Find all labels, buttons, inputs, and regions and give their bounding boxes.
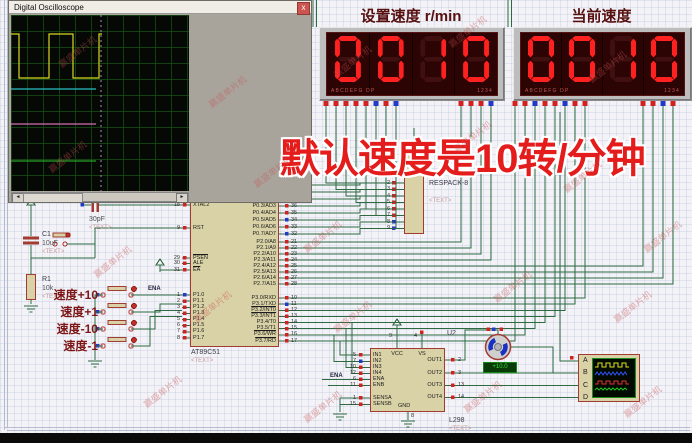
pin-indicator [459, 101, 464, 106]
segment-g [613, 57, 633, 62]
pin-indicator [285, 276, 289, 280]
segment-b [631, 39, 636, 58]
oscilloscope-traces [11, 15, 189, 191]
oscilloscope-plot-area [11, 15, 189, 191]
c1-value-label: 10uF [42, 240, 58, 247]
speed-push-button[interactable] [100, 319, 138, 333]
pin-indicator [285, 258, 289, 262]
pin-indicator [543, 101, 548, 106]
c1-text-placeholder: <TEXT> [42, 249, 64, 255]
pin-indicator [285, 232, 289, 236]
mcu-pin-number: 17 [291, 338, 297, 345]
pin-indicator [661, 101, 666, 106]
segment-legend: ABCDEFG DP [331, 88, 376, 94]
pin-indicator [285, 296, 289, 300]
driver-pin-number: 13 [458, 382, 464, 389]
display-inner: ABCDEFG DP1234 [326, 32, 498, 96]
respack-pin-number: 9 [378, 225, 390, 232]
segment-f [651, 39, 656, 58]
segment-g [572, 57, 592, 62]
segment-b [549, 39, 554, 58]
segment-e [610, 61, 615, 80]
pin-indicator [334, 101, 339, 106]
driver-pin-number: 4 [414, 333, 417, 340]
pin-indicator [513, 101, 518, 106]
driver-pin-label: GND [398, 403, 410, 410]
seven-seg-digit [528, 36, 554, 82]
pin-indicator [384, 101, 389, 106]
mcu-pin-label: P3.7/RD [226, 338, 276, 345]
driver-pin-number: 9 [389, 333, 392, 340]
segment-c [356, 61, 361, 80]
ena-net-label-buttons: ENA [148, 286, 161, 292]
seven-seg-digit [378, 36, 404, 82]
motor-rpm-readout: +10.0 [483, 362, 517, 373]
driver-pin-number: 15 [344, 401, 356, 408]
pin-indicator [359, 372, 363, 376]
pin-indicator [285, 321, 289, 325]
close-icon[interactable]: x [297, 2, 310, 15]
pin-indicator [285, 204, 289, 208]
seven-seg-digit [463, 36, 489, 82]
segment-f [335, 39, 340, 58]
pin-indicator [489, 101, 494, 106]
segment-b [399, 39, 404, 58]
pin-indicator [563, 101, 568, 106]
digit-cell [643, 33, 684, 95]
pin-indicator [573, 101, 578, 106]
pin-indicator [359, 378, 363, 382]
segment-a [613, 36, 633, 41]
segment-a [531, 36, 551, 41]
ena-net-label-driver: ENA [330, 373, 343, 379]
display-title-current-speed: 当前速度 [513, 5, 690, 26]
digit-cell [602, 33, 643, 95]
respack-text-placeholder: <TEXT> [429, 198, 451, 204]
pin-indicator [324, 101, 329, 106]
pin-indicator [285, 339, 289, 343]
motor-ref-label: U2 [447, 330, 456, 337]
segment-c [631, 61, 636, 80]
segment-f [569, 39, 574, 58]
pin-indicator [533, 101, 538, 106]
segment-c [441, 61, 446, 80]
mcu-pin-number: 8 [163, 335, 180, 342]
segment-f [528, 39, 533, 58]
speed-button-label: 速度+1 [14, 303, 98, 320]
wire [401, 421, 415, 427]
segment-a [466, 36, 486, 41]
motor-driver-ref-label: L298 [449, 417, 465, 424]
dc-motor-symbol [483, 332, 513, 362]
seven-seg-digit [610, 36, 636, 82]
segment-legend: ABCDEFG DP [525, 88, 570, 94]
segment-a [338, 36, 358, 41]
mcu-pin-label: RST [193, 225, 204, 232]
segment-d [613, 77, 633, 82]
segment-c [484, 61, 489, 80]
driver-pin-number: 2 [458, 357, 461, 364]
segment-e [378, 61, 383, 80]
segment-d [338, 77, 358, 82]
segment-c [399, 61, 404, 80]
segment-b [672, 39, 677, 58]
mcu-pin-label: EA [193, 267, 200, 274]
pin-indicator [183, 324, 187, 328]
pin-indicator [183, 312, 187, 316]
pin-indicator [285, 225, 289, 229]
component-shape [23, 237, 39, 240]
wire [333, 414, 347, 420]
speed-button-label: 速度-10 [14, 320, 98, 337]
r1-ref-label: R1 [42, 276, 51, 283]
pin-indicator [374, 101, 379, 106]
mcu-pin-number: 36 [291, 203, 297, 210]
driver-pin-number: 11 [344, 382, 356, 389]
scroll-right-arrow-icon[interactable]: ► [176, 193, 188, 203]
mcu-pin-number: 33 [291, 224, 297, 231]
seven-seg-digit [420, 36, 446, 82]
probe-input-label: C [583, 382, 588, 389]
oscilloscope-window: Digital Oscilloscope ◄ ► TriggerLevel-20… [8, 0, 312, 203]
segment-e [463, 61, 468, 80]
pin-indicator [451, 396, 455, 400]
mcu-pin-number: 34 [291, 217, 297, 224]
pin-indicator [183, 262, 187, 266]
segment-a [572, 36, 592, 41]
c2-text-placeholder: <TEXT> [89, 225, 111, 231]
pin-indicator [359, 396, 363, 400]
seven-seg-digit [569, 36, 595, 82]
pin-indicator [183, 203, 187, 207]
wire [393, 319, 401, 332]
segment-a [654, 36, 674, 41]
pin-indicator [394, 101, 399, 106]
digit-cell [327, 33, 369, 95]
driver-pin-label: VS [412, 351, 432, 358]
digit-cell [412, 33, 455, 95]
driver-pin-label: OUT3 [402, 382, 442, 389]
digit-cell [454, 33, 497, 95]
display-inner: ABCDEFG DP1234 [520, 32, 685, 96]
segment-e [335, 61, 340, 80]
segment-c [549, 61, 554, 80]
pin-indicator [285, 282, 289, 286]
digit-legend: 1234 [477, 88, 493, 94]
segment-e [651, 61, 656, 80]
scrollbar-thumb[interactable] [23, 193, 83, 203]
segment-g [531, 57, 551, 62]
mcu-pin-label: P0.6/AD6 [226, 224, 276, 231]
segment-g [466, 57, 486, 62]
pin-indicator [285, 252, 289, 256]
pin-indicator [183, 330, 187, 334]
pin-indicator [359, 360, 363, 364]
pin-indicator [285, 315, 289, 319]
pin-indicator [469, 101, 474, 106]
pin-indicator [183, 336, 187, 340]
segment-a [423, 36, 443, 41]
mcu-pin-label: P0.4/AD4 [226, 210, 276, 217]
segment-d [423, 77, 443, 82]
pin-indicator [570, 356, 574, 360]
mcu-text-placeholder: <TEXT> [191, 358, 213, 364]
pin-indicator [183, 299, 187, 303]
component-shape [23, 242, 39, 245]
driver-pin-label: ENB [373, 382, 384, 389]
pin-indicator [285, 327, 289, 331]
mcu-ref-label: AT89C51 [191, 349, 220, 356]
pin-indicator [285, 211, 289, 215]
pin-indicator [583, 101, 588, 106]
pin-indicator [183, 256, 187, 260]
segment-f [378, 39, 383, 58]
speed-push-button[interactable] [100, 285, 138, 299]
mcu-pin-label: P0.3/AD3 [226, 203, 276, 210]
pin-indicator [285, 264, 289, 268]
pin-indicator [523, 101, 528, 106]
digit-legend: 1234 [664, 88, 680, 94]
pin-indicator [451, 384, 455, 388]
mcu-pin-number: 35 [291, 210, 297, 217]
default-speed-caption: 默认速度是10转/分钟 [280, 126, 692, 184]
pin-indicator [285, 302, 289, 306]
pin-indicator [354, 101, 359, 106]
segment-d [531, 77, 551, 82]
digit-cell [521, 33, 561, 95]
segment-c [672, 61, 677, 80]
pin-indicator [420, 331, 424, 335]
segment-d [381, 77, 401, 82]
pin-indicator [500, 328, 504, 332]
seg-display-current-speed: ABCDEFG DP1234 [513, 27, 692, 101]
segment-b [590, 39, 595, 58]
pin-indicator [487, 328, 491, 332]
pin-indicator [364, 101, 369, 106]
pin-indicator [285, 218, 289, 222]
mcu-pin-number: 28 [291, 281, 297, 288]
pin-indicator [285, 309, 289, 313]
pin-indicator [359, 384, 363, 388]
segment-e [528, 61, 533, 80]
segment-g [654, 57, 674, 62]
oscilloscope-symbol-waveforms [593, 359, 633, 395]
pin-indicator [492, 328, 496, 332]
display-title-set-speed: 设置速度 r/min [319, 5, 503, 26]
probe-input-label: D [583, 394, 588, 401]
probe-input-label: B [583, 369, 588, 376]
probe-input-label: A [583, 357, 588, 364]
pin-indicator [183, 293, 187, 297]
motor-driver-text-placeholder: <TEXT> [449, 426, 471, 432]
pin-indicator [285, 270, 289, 274]
pin-indicator [285, 333, 289, 337]
mcu-pin-label: P0.5/AD5 [226, 217, 276, 224]
mcu-pin-label: P0.7/AD7 [226, 231, 276, 238]
pin-indicator [285, 240, 289, 244]
segment-d [654, 77, 674, 82]
pin-indicator [479, 101, 484, 106]
driver-pin-label: SENSB [373, 401, 392, 408]
segment-d [466, 77, 486, 82]
driver-pin-label: OUT4 [402, 394, 442, 401]
segment-d [572, 77, 592, 82]
mcu-pin-number: 31 [163, 267, 180, 274]
pin-indicator [451, 371, 455, 375]
pin-indicator [359, 353, 363, 357]
segment-e [569, 61, 574, 80]
driver-pin-label: OUT2 [402, 370, 442, 377]
segment-c [590, 61, 595, 80]
speed-push-button[interactable] [100, 302, 138, 316]
driver-pin-label: VCC [387, 351, 407, 358]
pin-indicator [183, 226, 187, 230]
c1-ref-label: C1 [42, 231, 51, 238]
mcu-pin-number: 32 [291, 231, 297, 238]
seg-display-set-speed: ABCDEFG DP1234 [319, 27, 505, 101]
driver-pin-number: 3 [458, 370, 461, 377]
pin-indicator [651, 101, 656, 106]
component-shape [53, 233, 67, 237]
mcu-pin-number: 9 [163, 225, 180, 232]
pin-indicator [359, 366, 363, 370]
pin-indicator [641, 101, 646, 106]
segment-g [338, 57, 358, 62]
digit-cell [369, 33, 412, 95]
pin-indicator [81, 203, 85, 207]
oscilloscope-hscrollbar[interactable]: ◄ ► [11, 192, 189, 202]
segment-b [484, 39, 489, 58]
speed-button-label: 速度-1 [14, 337, 98, 354]
speed-button-label: 速度+10 [14, 286, 98, 303]
button-terminal [63, 242, 67, 246]
digit-cell [561, 33, 602, 95]
driver-pin-number: 14 [458, 394, 464, 401]
pin-indicator [344, 101, 349, 106]
segment-g [423, 57, 443, 62]
seven-seg-digit [651, 36, 677, 82]
mcu-pin-label: P1.7 [193, 335, 204, 342]
segment-a [381, 36, 401, 41]
segment-f [420, 39, 425, 58]
driver-pin-number: 8 [411, 413, 414, 420]
pin-indicator [183, 318, 187, 322]
segment-g [381, 57, 401, 62]
wire [511, 347, 553, 373]
mcu-pin-label: P2.7/A15 [226, 281, 276, 288]
pin-indicator [285, 246, 289, 250]
proteus-simulation-screen: AT89C51 <TEXT> RESPACK-8 <TEXT> L298 <TE… [0, 0, 692, 443]
oscilloscope-window-titlebar[interactable]: Digital Oscilloscope [9, 1, 311, 14]
button-terminal [66, 233, 70, 237]
speed-push-button[interactable] [100, 336, 138, 350]
pin-indicator [183, 306, 187, 310]
c2-value-label: 30pF [89, 216, 105, 223]
seven-seg-digit [335, 36, 361, 82]
pin-indicator [451, 358, 455, 362]
bottom-black-bar [0, 433, 692, 443]
wire [88, 361, 102, 367]
pin-indicator [183, 268, 187, 272]
segment-b [356, 39, 361, 58]
segment-b [441, 39, 446, 58]
segment-f [610, 39, 615, 58]
pin-indicator [671, 101, 676, 106]
segment-e [420, 61, 425, 80]
pin-indicator [553, 101, 558, 106]
pin-indicator [359, 403, 363, 407]
segment-f [463, 39, 468, 58]
